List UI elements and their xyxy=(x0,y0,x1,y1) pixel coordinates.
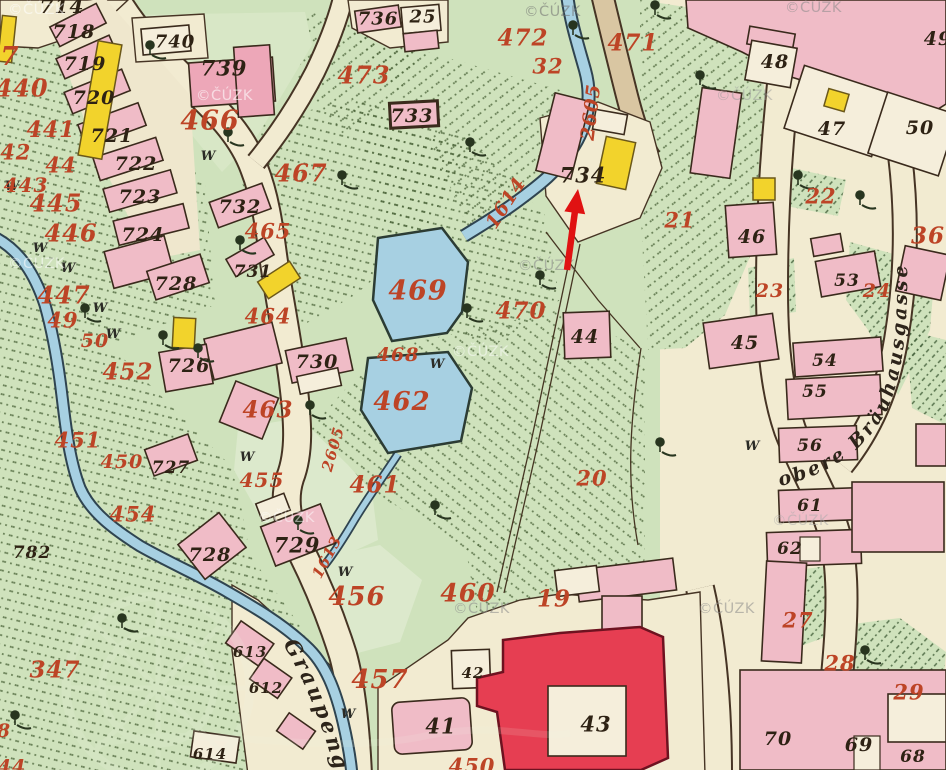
parcel-label-472: 472 xyxy=(497,25,548,52)
house-label-740: 740 xyxy=(155,32,196,53)
house-label-613: 613 xyxy=(233,643,267,661)
parcel-label-465: 465 xyxy=(245,219,292,244)
house-label-731: 731 xyxy=(234,262,273,282)
parcel-label-462: 462 xyxy=(373,387,430,417)
house-label-721: 721 xyxy=(91,125,134,147)
parcel-label-450: 450 xyxy=(449,754,496,770)
house-label-782: 782 xyxy=(13,543,52,563)
house-label-48: 48 xyxy=(761,51,789,73)
house-label-732: 732 xyxy=(219,196,262,218)
watermark-cuzk: ©ČÚZK xyxy=(196,86,253,104)
house-label-727: 727 xyxy=(152,458,191,478)
parcel-label-23: 23 xyxy=(755,280,784,302)
parcel-label-457: 457 xyxy=(351,665,408,695)
meadow-mark: W xyxy=(430,357,446,372)
house-label-723: 723 xyxy=(119,186,162,208)
parcel-label-27: 27 xyxy=(781,608,813,633)
parcel-label-466: 466 xyxy=(180,106,239,137)
house-label-733: 733 xyxy=(391,105,434,127)
house-label-719: 719 xyxy=(64,53,107,75)
house-label-53: 53 xyxy=(834,271,860,291)
parcel-label-347: 347 xyxy=(29,657,80,684)
meadow-mark: W xyxy=(341,707,357,722)
parcel-label-446: 446 xyxy=(44,219,97,248)
house-label-54: 54 xyxy=(812,351,838,371)
house-label-68: 68 xyxy=(900,747,926,767)
house-label-42: 42 xyxy=(462,664,485,682)
parcel-label-470: 470 xyxy=(495,298,546,325)
cadastral-map: WWWWWWWWWWW Graupengasseobere Bräuhausga… xyxy=(0,0,946,770)
parcel-label-445: 445 xyxy=(29,189,82,218)
watermark-cuzk: ©ČÚZK xyxy=(258,508,315,526)
parcel-label-49: 49 xyxy=(47,308,78,333)
house-label-726: 726 xyxy=(168,355,211,377)
house-label-70: 70 xyxy=(764,728,792,750)
parcel-label-469: 469 xyxy=(388,276,447,307)
watermark-cuzk: ©ČÚZK xyxy=(452,342,509,360)
building-54 xyxy=(793,337,883,377)
watermark-cuzk: ©ČÚZK xyxy=(8,0,65,18)
house-label-46: 46 xyxy=(738,226,766,248)
house-label-25: 25 xyxy=(408,7,436,28)
watermark-cuzk: ©ČÚZK xyxy=(698,599,755,617)
parcel-label-440: 440 xyxy=(0,74,49,103)
parcel-label-463: 463 xyxy=(242,397,293,424)
parcel-label-454: 454 xyxy=(110,502,157,527)
meadow-mark: W xyxy=(338,565,354,580)
house-label-734: 734 xyxy=(560,163,607,188)
meadow-mark: W xyxy=(93,301,109,316)
watermark-cuzk: ©ČÚZK xyxy=(785,0,842,16)
parcel-label-24: 24 xyxy=(862,280,891,302)
house-label-724: 724 xyxy=(122,224,165,246)
parcel-label-455: 455 xyxy=(240,468,285,492)
house-label-739: 739 xyxy=(201,56,248,81)
house-label-730: 730 xyxy=(296,351,339,373)
house-label-614: 614 xyxy=(193,745,227,763)
parcel-label-450: 450 xyxy=(101,451,144,473)
house-label-56: 56 xyxy=(797,436,823,456)
parcel-label-7: 7 xyxy=(0,42,19,72)
parcel-label-456: 456 xyxy=(328,582,385,612)
map-canvas: WWWWWWWWWWW Graupengasseobere Bräuhausga… xyxy=(0,0,946,770)
parcel-label-50: 50 xyxy=(81,330,109,352)
house-label-44: 44 xyxy=(571,326,599,348)
house-label-728: 728 xyxy=(155,273,198,295)
parcel-label-29: 29 xyxy=(892,680,924,705)
meadow-mark: W xyxy=(240,450,256,465)
watermark-cuzk: ©ČÚZK xyxy=(716,86,773,104)
house-label-47: 47 xyxy=(818,118,846,140)
house-label-728: 728 xyxy=(189,544,232,566)
parcel-label-452: 452 xyxy=(102,359,153,386)
parcel-label-44: 44 xyxy=(0,756,26,770)
parcel-label-20: 20 xyxy=(575,466,607,491)
parcel-label-441: 441 xyxy=(27,117,76,143)
parcel-label-21: 21 xyxy=(663,208,695,233)
watermark-cuzk: ©ČÚZK xyxy=(772,511,829,529)
parcel-label-8: 8 xyxy=(0,720,11,742)
parcel-label-468: 468 xyxy=(377,344,420,366)
house-label-50: 50 xyxy=(906,117,934,139)
house-label-49: 49 xyxy=(924,28,946,50)
house-label-62: 62 xyxy=(777,539,803,559)
parcel-label-464: 464 xyxy=(245,304,292,329)
house-label-612: 612 xyxy=(249,679,283,697)
parcel-label-44: 44 xyxy=(45,153,76,178)
parcel-label-461: 461 xyxy=(349,472,400,499)
house-label-720: 720 xyxy=(73,87,116,109)
house-label-41: 41 xyxy=(425,714,456,739)
parcel-label-36: 36 xyxy=(911,223,945,250)
house-label-69: 69 xyxy=(845,734,873,756)
parcel-label-451: 451 xyxy=(55,428,102,453)
parcel-label-22: 22 xyxy=(804,184,836,209)
meadow-mark: W xyxy=(745,439,761,454)
watermark-cuzk: ©ČÚZK xyxy=(8,254,65,272)
parcel-label-467: 467 xyxy=(274,159,327,188)
parcel-label-32: 32 xyxy=(532,54,563,79)
house-label-722: 722 xyxy=(115,153,158,175)
parcel-label-19: 19 xyxy=(537,586,571,613)
parcel-label-447: 447 xyxy=(37,281,90,310)
house-label-736: 736 xyxy=(358,9,399,30)
house-label-718: 718 xyxy=(53,21,96,43)
house-label-43: 43 xyxy=(580,712,611,737)
parcel-label-442: 442 xyxy=(0,140,31,165)
meadow-mark: W xyxy=(201,149,217,164)
watermark-cuzk: ©ČÚZK xyxy=(453,599,510,617)
house-label-55: 55 xyxy=(802,382,828,402)
watermark-cuzk: ©ČÚZK xyxy=(524,2,581,20)
house-label-729: 729 xyxy=(274,533,321,558)
parcel-label-473: 473 xyxy=(337,61,390,90)
parcel-label-28: 28 xyxy=(823,651,855,676)
house-label-45: 45 xyxy=(731,332,759,354)
parcel-label-471: 471 xyxy=(607,30,658,57)
